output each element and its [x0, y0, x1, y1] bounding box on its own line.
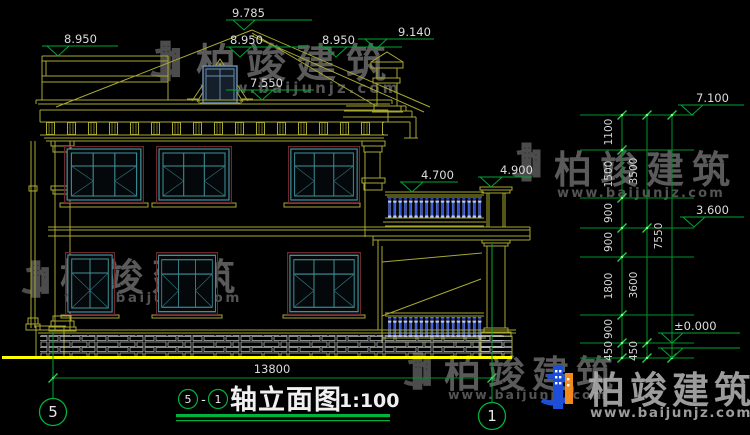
elevation-label: 8.950	[230, 33, 263, 47]
watermark-url: www.baijunjz.com	[557, 186, 725, 201]
dentil-band	[46, 122, 384, 135]
elevation-marker-right-roof: 7.100	[678, 91, 744, 115]
left-parapet	[42, 56, 168, 100]
title-name: 轴立面图	[230, 384, 342, 416]
dim-label: 900	[603, 319, 615, 339]
stone-veneer	[40, 335, 504, 357]
balcony-column	[480, 187, 512, 357]
cad-elevation-screenshot: 柏竣建筑 www.baijunjz.com 柏竣建筑 www.baijunjz.…	[0, 0, 750, 435]
balcony-railing	[383, 192, 486, 226]
dim-label: 1500	[603, 161, 615, 188]
window-1f-right	[287, 253, 360, 315]
watermark-right-mid: 柏竣建筑 www.baijunjz.com	[513, 143, 738, 201]
title-axis-end-label: 1	[215, 393, 222, 406]
dim-label: 1800	[603, 273, 615, 300]
elevation-marker-ridge: 9.785	[226, 6, 312, 30]
dim-label: 450	[628, 341, 640, 361]
total-width-label: 13800	[254, 362, 291, 376]
elevation-label: ±0.000	[674, 319, 717, 333]
dim-label: 3500	[628, 158, 640, 185]
window-2f-left	[65, 147, 144, 203]
dim-label: 1100	[603, 119, 615, 146]
elevation-label: 9.785	[232, 6, 265, 20]
balusters	[388, 317, 482, 337]
window-2f-right	[288, 147, 359, 203]
elevation-label: 9.140	[398, 25, 431, 39]
title-underline-thin	[176, 420, 390, 421]
title-scale: 1:100	[339, 390, 399, 412]
elevation-marker-ground	[658, 348, 740, 358]
watermark-logo-icon	[23, 261, 49, 297]
floor-band	[48, 227, 530, 246]
dim-label: 900	[603, 203, 615, 223]
window-1f-left	[65, 253, 114, 315]
right-pilaster	[362, 141, 385, 237]
elevation-label: 7.100	[696, 91, 729, 105]
axis-bubble-left-label: 5	[48, 403, 58, 421]
elevation-marker-balcony-rail: 4.700	[400, 168, 458, 192]
elevation-label: 4.700	[421, 168, 454, 182]
title-axis-start-label: 5	[185, 393, 192, 406]
dim-label: 900	[603, 232, 615, 252]
elevation-label: 7.550	[250, 76, 283, 90]
axis-bubble-right-label: 1	[487, 407, 497, 425]
elevation-label: 8.950	[322, 33, 355, 47]
elevation-marker-second-floor: 3.600	[680, 203, 744, 227]
title-underline-thick	[176, 414, 390, 417]
eave-cornice	[36, 100, 392, 141]
elevation-marker-parapet-left: 8.950	[42, 32, 118, 56]
window-2f-center	[157, 147, 232, 203]
elevation-marker-zero: ±0.000	[658, 319, 740, 343]
dim-label: 3600	[628, 272, 640, 299]
balusters	[388, 198, 482, 218]
elevation-marker-balcony-pillar: 4.900	[478, 163, 533, 187]
elevation-drawing-canvas: 柏竣建筑 www.baijunjz.com 柏竣建筑 www.baijunjz.…	[0, 0, 750, 435]
elevation-label: 3.600	[696, 203, 729, 217]
watermark-url: www.baijunjz.com	[448, 387, 608, 402]
dim-label: 450	[603, 341, 615, 361]
drawing-title: 5 - 1 轴立面图 1:100	[176, 384, 399, 421]
elevation-label: 8.950	[64, 32, 97, 46]
window-1f-center	[156, 253, 217, 315]
dim-label: 7550	[653, 223, 665, 250]
title-separator: -	[201, 393, 206, 408]
elevation-label: 4.900	[500, 163, 533, 177]
brand-url: www.baijunjz.com	[590, 405, 750, 421]
